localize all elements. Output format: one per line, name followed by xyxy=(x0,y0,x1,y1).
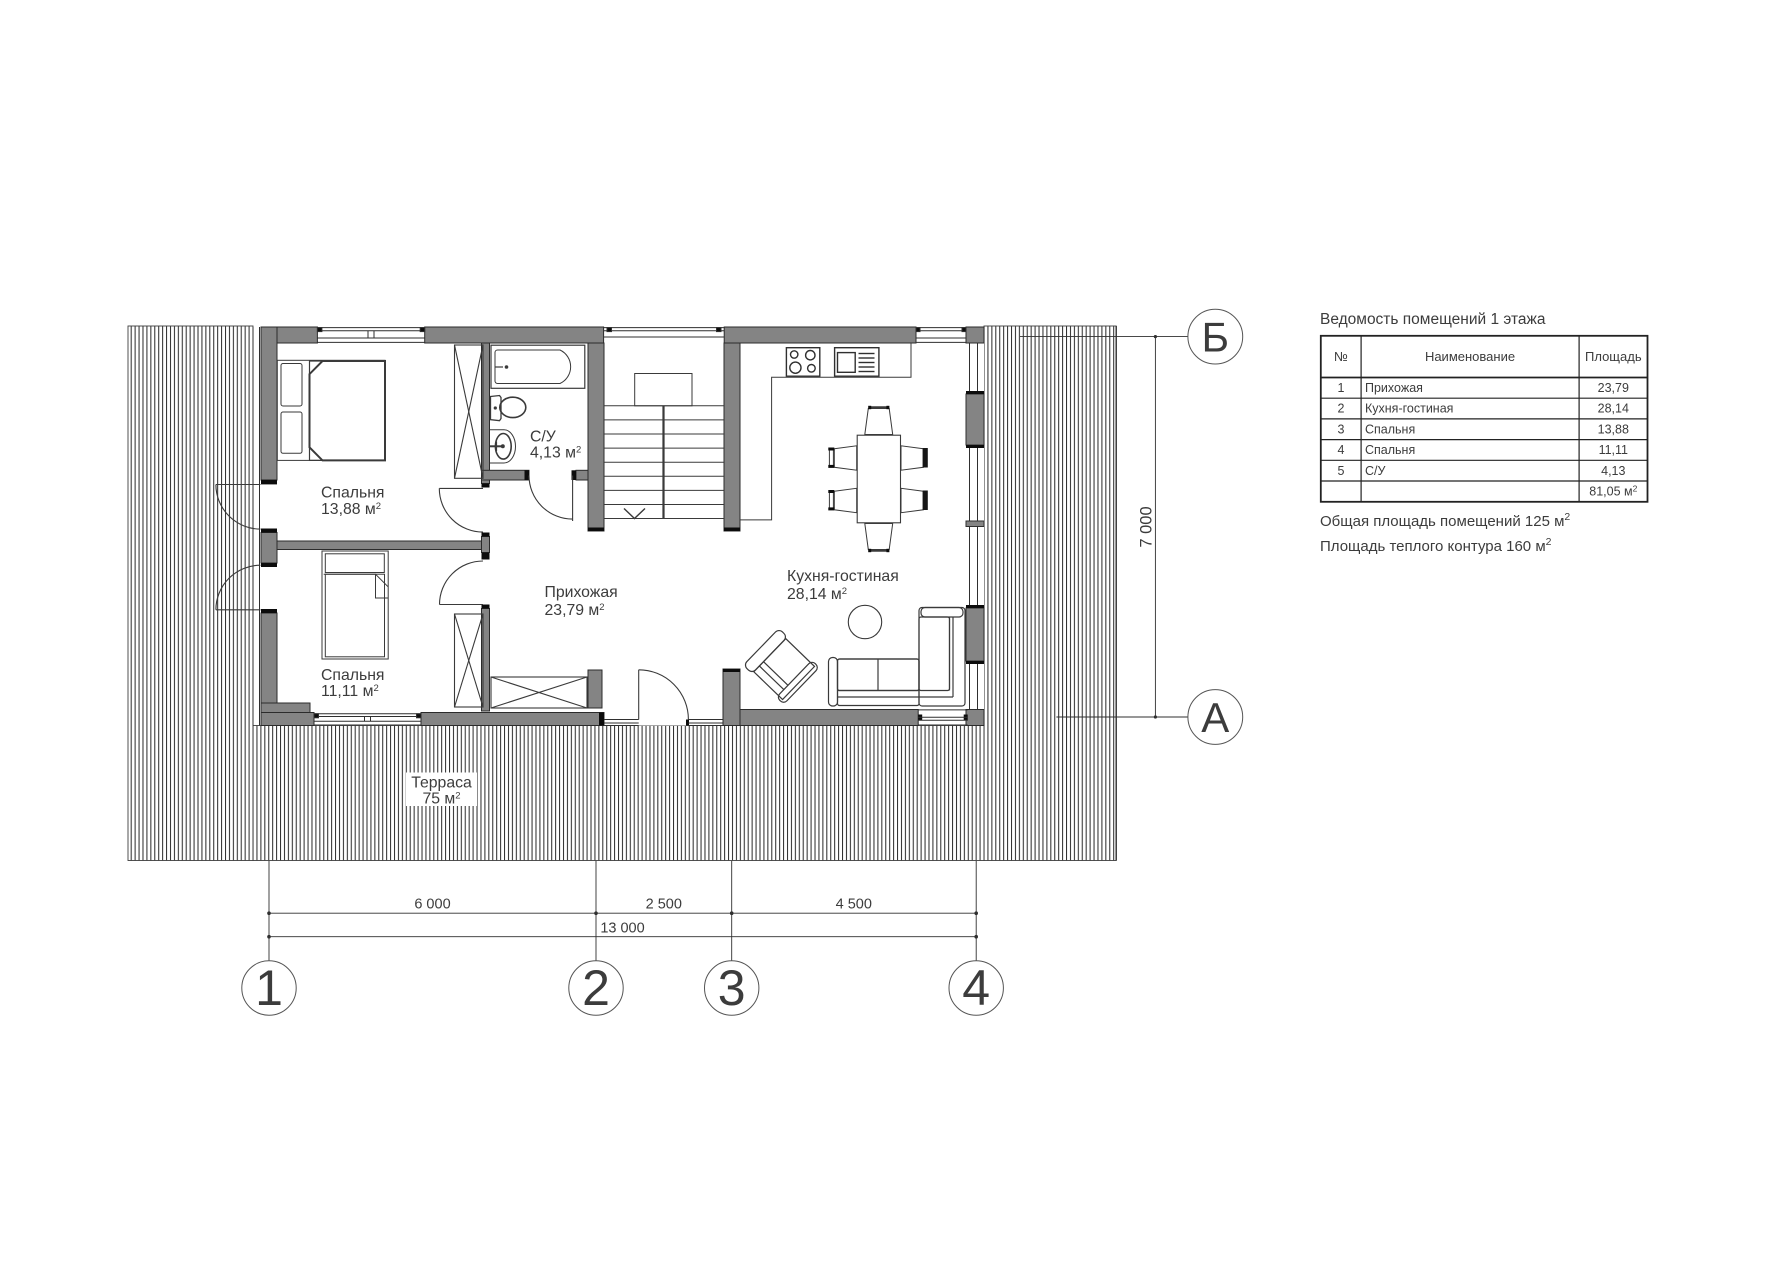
svg-text:3: 3 xyxy=(1338,422,1345,436)
svg-text:11,11 м2: 11,11 м2 xyxy=(321,683,379,700)
svg-text:13,88: 13,88 xyxy=(1598,422,1629,436)
svg-text:Спальня: Спальня xyxy=(321,667,384,684)
svg-text:А: А xyxy=(1201,694,1229,741)
svg-text:Спальня: Спальня xyxy=(321,485,384,502)
svg-text:28,14 м2: 28,14 м2 xyxy=(787,586,847,603)
svg-text:4,13 м2: 4,13 м2 xyxy=(530,445,581,462)
svg-text:75 м2: 75 м2 xyxy=(422,791,460,808)
svg-text:7 000: 7 000 xyxy=(1138,506,1156,547)
svg-text:Ведомость помещений 1 этажа: Ведомость помещений 1 этажа xyxy=(1320,311,1546,328)
svg-text:23,79: 23,79 xyxy=(1598,381,1629,395)
svg-text:Общая площадь помещений 125 м2: Общая площадь помещений 125 м2 xyxy=(1320,511,1570,530)
svg-text:13,88 м2: 13,88 м2 xyxy=(321,501,381,518)
svg-text:Площадь: Площадь xyxy=(1585,349,1642,364)
svg-text:2: 2 xyxy=(1338,402,1345,416)
svg-text:Спальня: Спальня xyxy=(1365,443,1415,457)
svg-text:4,13: 4,13 xyxy=(1601,464,1625,478)
svg-text:Наименование: Наименование xyxy=(1425,349,1515,364)
svg-text:№: № xyxy=(1334,349,1348,364)
svg-text:28,14: 28,14 xyxy=(1598,402,1629,416)
svg-text:С/У: С/У xyxy=(1365,464,1386,478)
svg-text:1: 1 xyxy=(255,960,283,1016)
svg-text:4: 4 xyxy=(962,960,990,1016)
svg-text:2 500: 2 500 xyxy=(646,897,682,913)
svg-text:Кухня-гостиная: Кухня-гостиная xyxy=(787,568,899,585)
svg-text:13 000: 13 000 xyxy=(600,921,644,937)
svg-text:81,05 м2: 81,05 м2 xyxy=(1589,484,1637,499)
svg-text:С/У: С/У xyxy=(530,429,557,446)
svg-text:Кухня-гостиная: Кухня-гостиная xyxy=(1365,402,1453,416)
svg-text:11,11: 11,11 xyxy=(1599,443,1628,457)
svg-text:Прихожая: Прихожая xyxy=(545,584,618,601)
svg-text:Спальня: Спальня xyxy=(1365,422,1415,436)
svg-text:Терраса: Терраса xyxy=(411,775,472,792)
svg-text:4 500: 4 500 xyxy=(836,897,872,913)
svg-text:6 000: 6 000 xyxy=(414,897,450,913)
svg-text:Б: Б xyxy=(1202,314,1230,361)
svg-text:Прихожая: Прихожая xyxy=(1365,381,1423,395)
svg-text:3: 3 xyxy=(718,960,746,1016)
svg-text:4: 4 xyxy=(1338,443,1345,457)
svg-text:5: 5 xyxy=(1338,464,1345,478)
svg-text:Площадь теплого контура 160 м2: Площадь теплого контура 160 м2 xyxy=(1320,536,1552,555)
svg-text:2: 2 xyxy=(582,960,610,1016)
svg-text:1: 1 xyxy=(1338,381,1345,395)
svg-text:23,79 м2: 23,79 м2 xyxy=(545,602,605,619)
